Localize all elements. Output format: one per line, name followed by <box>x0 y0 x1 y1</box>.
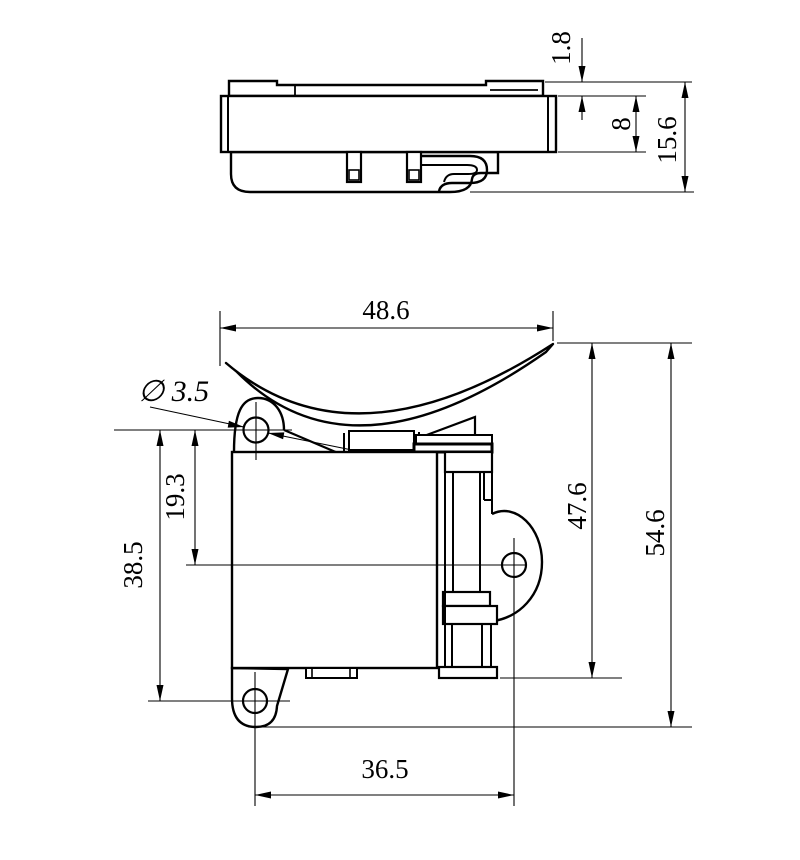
dim-right-section-height: 47.6 <box>562 482 592 529</box>
gusset-rib <box>424 417 475 436</box>
dim-plate-thickness: 1.8 <box>546 31 576 65</box>
rail-foot <box>439 667 497 678</box>
rail-verticals <box>445 472 492 667</box>
top-view <box>221 38 694 192</box>
pin-left-slot <box>349 170 359 180</box>
technical-drawing: 1.8 8 15.6 <box>0 0 800 860</box>
dim-front-total-height: 54.6 <box>640 509 670 556</box>
profile-body <box>221 96 556 152</box>
dim-saddle-width: 48.6 <box>362 295 409 325</box>
rail-block-b <box>443 606 497 624</box>
pin-right-slot <box>409 170 419 180</box>
dim-profile-total-height: 15.6 <box>652 116 682 163</box>
center-bar <box>349 431 414 450</box>
dim-body-height: 8 <box>606 117 636 131</box>
drawing-canvas: 1.8 8 15.6 <box>0 0 800 860</box>
lower-plate <box>414 444 492 452</box>
dim-hole-horizontal-spacing: 36.5 <box>361 754 408 784</box>
main-body <box>232 452 437 668</box>
rail-top-block <box>445 452 492 472</box>
tray-outline <box>231 152 498 192</box>
dim-upper-hole-to-centerline: 19.3 <box>160 473 190 520</box>
rail-block-a <box>443 592 490 606</box>
top-plate-outline <box>229 81 543 96</box>
dim-hole-diameter: ∅ 3.5 <box>138 375 209 408</box>
dim-upper-to-lower-hole: 38.5 <box>118 541 148 588</box>
